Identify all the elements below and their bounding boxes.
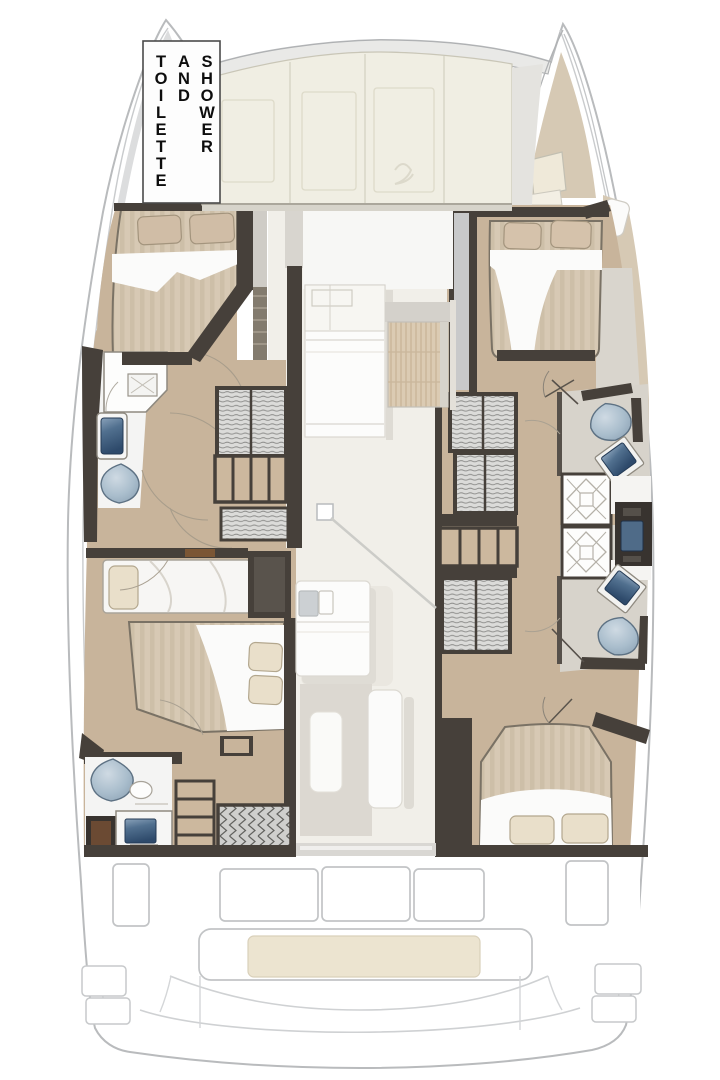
svg-text:W: W <box>199 104 215 122</box>
svg-text:O: O <box>155 70 168 88</box>
svg-text:N: N <box>178 70 190 88</box>
svg-text:H: H <box>201 70 213 88</box>
svg-text:E: E <box>155 172 166 190</box>
svg-text:T: T <box>156 155 166 173</box>
svg-text:O: O <box>201 87 214 105</box>
svg-text:E: E <box>155 121 166 139</box>
svg-text:T: T <box>156 53 166 71</box>
svg-text:D: D <box>178 87 190 105</box>
svg-text:I: I <box>159 87 164 105</box>
svg-text:E: E <box>201 121 212 139</box>
svg-text:T: T <box>156 138 166 156</box>
svg-text:S: S <box>201 53 212 71</box>
svg-text:L: L <box>156 104 166 122</box>
svg-text:R: R <box>201 138 213 156</box>
svg-text:A: A <box>178 53 190 71</box>
